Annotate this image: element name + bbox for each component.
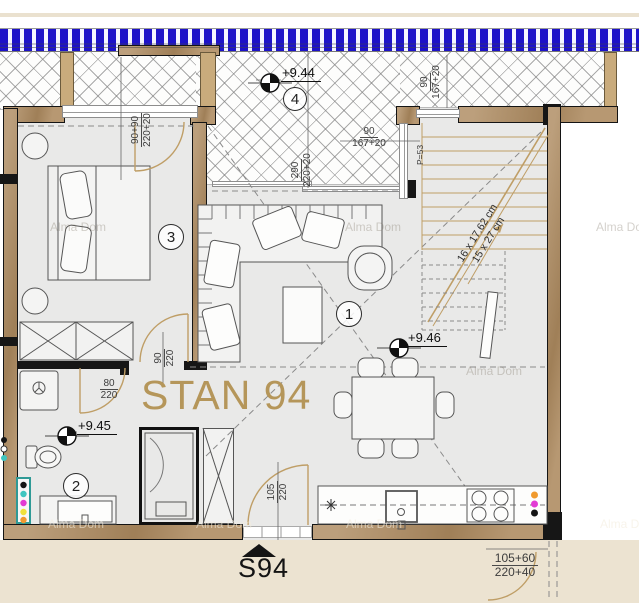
watermark: Alma Dom bbox=[48, 517, 104, 531]
dim-terrace-mid: 290 220+20 bbox=[289, 140, 313, 200]
dim-bath-door: 80 220 bbox=[92, 378, 126, 401]
floor-plan: Alma Dom Alma Dom Alma Dom Alma Dom Alma… bbox=[0, 0, 639, 603]
toilet bbox=[26, 446, 61, 468]
dim-den: 167+20 bbox=[431, 65, 442, 99]
dim-terrace-right: 90 167+20 bbox=[418, 55, 442, 109]
room-label-living: 1 bbox=[336, 301, 362, 327]
wardrobe bbox=[20, 322, 133, 360]
threshold-lines bbox=[262, 527, 300, 538]
dim-den: 220 bbox=[101, 390, 118, 401]
armchair bbox=[348, 246, 392, 290]
washing-machine bbox=[20, 371, 58, 410]
coffee-table bbox=[283, 287, 322, 343]
dim-num: 90 bbox=[153, 349, 165, 366]
elevation-terrace: +9.44 bbox=[281, 65, 321, 82]
watermark: Alma Dom bbox=[345, 220, 401, 234]
dim-den: 167+20 bbox=[352, 138, 386, 149]
dim-den: 220 bbox=[165, 350, 176, 367]
watermark: Alma Dom bbox=[196, 517, 252, 531]
dim-num: 80 bbox=[100, 378, 117, 390]
dim-num: 90+90 bbox=[130, 113, 142, 147]
section-marker: S94 bbox=[238, 553, 289, 584]
dim-num: 90 bbox=[419, 73, 431, 90]
dim-num: 105+60 bbox=[492, 552, 538, 566]
cabinet-cross bbox=[203, 428, 234, 524]
dim-terrace-left: 90+90 220+20 bbox=[129, 100, 153, 160]
dim-den: 220+20 bbox=[302, 153, 313, 187]
watermark: Alma Dom bbox=[600, 517, 639, 531]
dim-num: 290 bbox=[290, 159, 302, 182]
area-label: P=53 bbox=[415, 125, 425, 165]
railing-hairlines bbox=[0, 44, 639, 48]
dim-den: 220 bbox=[278, 484, 289, 501]
watermark: Alma Dom bbox=[346, 517, 402, 531]
dim-entry-door: 105 220 bbox=[265, 470, 289, 514]
room-label-terrace: 4 bbox=[283, 87, 307, 111]
dining-set bbox=[334, 358, 454, 458]
dim-exterior-door: 105+60 220+40 bbox=[486, 552, 544, 579]
watermark: Alma Dom bbox=[466, 364, 522, 378]
room-label-bedroom: 3 bbox=[158, 224, 184, 250]
room-label-bath: 2 bbox=[63, 473, 89, 499]
dim-den: 220+20 bbox=[142, 113, 153, 147]
dim-den: 220+40 bbox=[495, 566, 535, 579]
shower-door bbox=[145, 433, 193, 519]
apartment-title: STAN 94 bbox=[141, 372, 311, 419]
plan-drawing-overlay bbox=[0, 0, 639, 603]
elevation-bath: +9.45 bbox=[77, 418, 117, 435]
watermark: Alma Dom bbox=[596, 220, 639, 234]
nightstands bbox=[22, 133, 48, 314]
dim-terrace-top: 90 167+20 bbox=[343, 126, 395, 149]
dim-num: 90 bbox=[360, 126, 377, 138]
watermark: Alma Dom bbox=[50, 220, 106, 234]
elevation-living: +9.46 bbox=[407, 330, 447, 347]
dim-num: 105 bbox=[266, 481, 278, 504]
